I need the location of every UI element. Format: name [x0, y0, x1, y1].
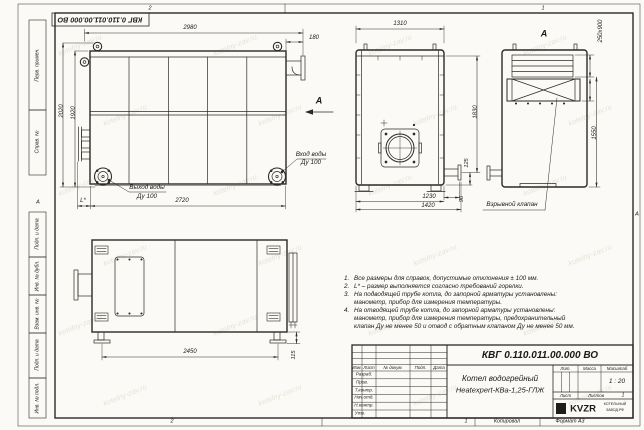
note-text: На подводящей трубе котла, до запорной а… — [354, 291, 584, 307]
note-item-2: 2.L* – размер выполняется согласно требо… — [344, 283, 584, 291]
front-view — [60, 29, 333, 209]
plan-dim-width: 2450 — [183, 349, 196, 355]
logo-text: KVZR — [570, 404, 596, 414]
title-sheets-value: 1 — [622, 393, 625, 398]
drawing-sheet: kotelny-zav.rukotelny-zav.rukotelny-zav.… — [0, 0, 644, 430]
note-number: 3. — [344, 291, 354, 307]
logo-icon — [556, 403, 566, 414]
zone-number-bottom-left: 2 — [170, 419, 173, 425]
water-inlet-flange — [269, 168, 286, 185]
front-view-arrow-label: А — [316, 97, 323, 106]
zone-number-top-left: 2 — [148, 6, 151, 12]
view-arrow-A — [305, 109, 333, 115]
access-panel — [115, 257, 144, 316]
title-row-razrab: Разраб. — [356, 373, 373, 378]
water-outlet-label: Выход воды — [129, 185, 164, 191]
logo-subtext-2: ЗАВОД.РФ — [606, 409, 624, 413]
title-doc-number: КВГ 0.110.011.00.000 ВО — [482, 351, 598, 361]
title-row-tkontr: Т.контр. — [355, 388, 374, 393]
side-dim-depth: 1230 — [422, 194, 435, 200]
air-slot-grille — [512, 55, 573, 77]
side-dim-width: 1310 — [393, 21, 406, 27]
title-sheets-label: Листов — [588, 393, 604, 397]
title-col-podp: Подп. — [415, 366, 427, 370]
note-number: 4. — [344, 307, 354, 331]
front-dim-bottom: 2720 — [175, 198, 188, 204]
logo-subtext-1: КОТЕЛЬНЫЙ — [604, 403, 627, 407]
side-dim-off1: 125 — [465, 158, 471, 167]
title-col-list: Лист — [363, 366, 374, 370]
zone-number-top-right: 1 — [541, 6, 544, 12]
margin-cell-podp-data-2: Подп. и дата — [35, 339, 40, 370]
zone-letter-left: А — [36, 200, 40, 206]
title-row-nkontr: Н.контр. — [354, 404, 373, 409]
margin-cell-podp-data-1: Подп. и дата — [35, 218, 40, 249]
title-col-doc: № докум. — [383, 366, 402, 370]
side-dim-height: 1830 — [473, 105, 479, 118]
side-dim-off2: 90 — [460, 196, 466, 202]
title-sheet-label: Лист — [560, 393, 571, 397]
margin-cell-inv-podl: Инв. № подл. — [35, 382, 40, 413]
margin-cell-vzam-inv: Взам. инв. № — [35, 299, 40, 330]
plan-view — [74, 240, 300, 360]
note-text: На отводящей трубе котла, до запорной ар… — [354, 307, 584, 331]
note-number: 2. — [344, 283, 354, 291]
rear-view-label: А — [541, 30, 548, 39]
note-number: 1. — [344, 275, 354, 283]
margin-cell-sprav-n: Справ. № — [35, 131, 40, 154]
title-col-izm: Изм. — [352, 366, 361, 370]
drawing-linework — [0, 0, 644, 430]
note-text: Все размеры для справок, допустимые откл… — [354, 275, 584, 283]
title-scale-value: 1 : 20 — [609, 378, 625, 385]
plan-dim-height: 115 — [292, 351, 298, 360]
side-dim-overall: 1420 — [421, 203, 434, 209]
front-dim-width: 2980 — [183, 25, 196, 31]
water-outlet-flange — [95, 168, 112, 185]
front-dim-offset: 180 — [309, 35, 319, 41]
title-mass-label: Масса — [583, 366, 596, 370]
rear-dim-height: 1550 — [592, 126, 598, 139]
format-label: Формат А3 — [556, 419, 585, 424]
sheet-frame — [18, 4, 640, 426]
title-lit-label: Лит. — [560, 366, 570, 370]
note-item-4: 4.На отводящей трубе котла, до запорной … — [344, 307, 584, 331]
copied-label: Копировал — [494, 419, 520, 424]
explosion-valve-callout: Взрывной клапан — [486, 202, 537, 208]
title-scale-label: Масштаб — [607, 366, 628, 370]
front-dim-l-star: L* — [80, 198, 86, 204]
title-col-date: Дата — [433, 366, 445, 370]
notes-list: 1.Все размеры для справок, допустимые от… — [344, 275, 584, 331]
water-inlet-label: Вход воды — [296, 151, 327, 157]
zone-number-bottom-right: 1 — [464, 419, 467, 425]
note-item-1: 1.Все размеры для справок, допустимые от… — [344, 275, 584, 283]
side-view — [355, 26, 480, 212]
title-row-nachotd: Нач.отд. — [354, 396, 373, 401]
zone-letter-right: А — [635, 212, 639, 218]
title-name-line1: Котел водогрейный — [462, 375, 538, 383]
front-dim-height-outer: 2020 — [59, 104, 65, 117]
margin-cell-inv-dubl: Инв. № дубл. — [35, 261, 40, 292]
rear-view — [483, 44, 600, 210]
margin-cell-perv-primen: Перв. примен. — [35, 48, 40, 81]
title-name-line2: Heatexpert-КВа-1,25-ГЛЖ — [456, 386, 544, 394]
burner-flange — [379, 129, 422, 167]
stamp-doc-number-inverted: КВГ 0.110.011.00.000 ВО — [58, 16, 143, 23]
title-row-prov: Пров. — [356, 381, 368, 386]
rear-dim-slot: 250x900 — [598, 19, 604, 42]
water-outlet-dn: Ду 100 — [137, 193, 157, 199]
note-text: L* – размер выполняется согласно требова… — [354, 283, 584, 291]
note-item-3: 3.На подводящей трубе котла, до запорной… — [344, 291, 584, 307]
title-row-utv: Утв. — [355, 412, 365, 417]
explosion-valve — [507, 79, 580, 104]
front-dim-height-inner: 1920 — [71, 106, 77, 119]
corner-eyelet — [80, 58, 88, 66]
water-inlet-dn: Ду 100 — [301, 160, 321, 166]
